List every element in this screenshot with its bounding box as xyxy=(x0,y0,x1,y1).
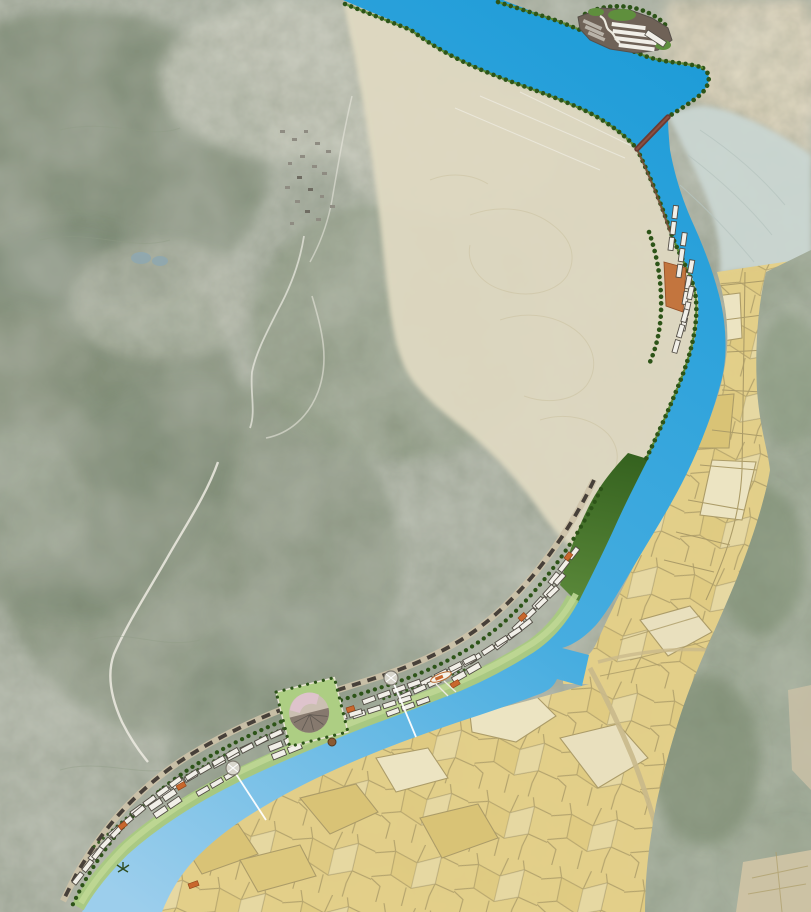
settlement-green xyxy=(588,8,604,16)
river-buoy xyxy=(328,738,336,746)
map-canvas xyxy=(0,0,811,912)
settlement-green xyxy=(608,9,636,21)
masterplan-map xyxy=(0,0,811,912)
